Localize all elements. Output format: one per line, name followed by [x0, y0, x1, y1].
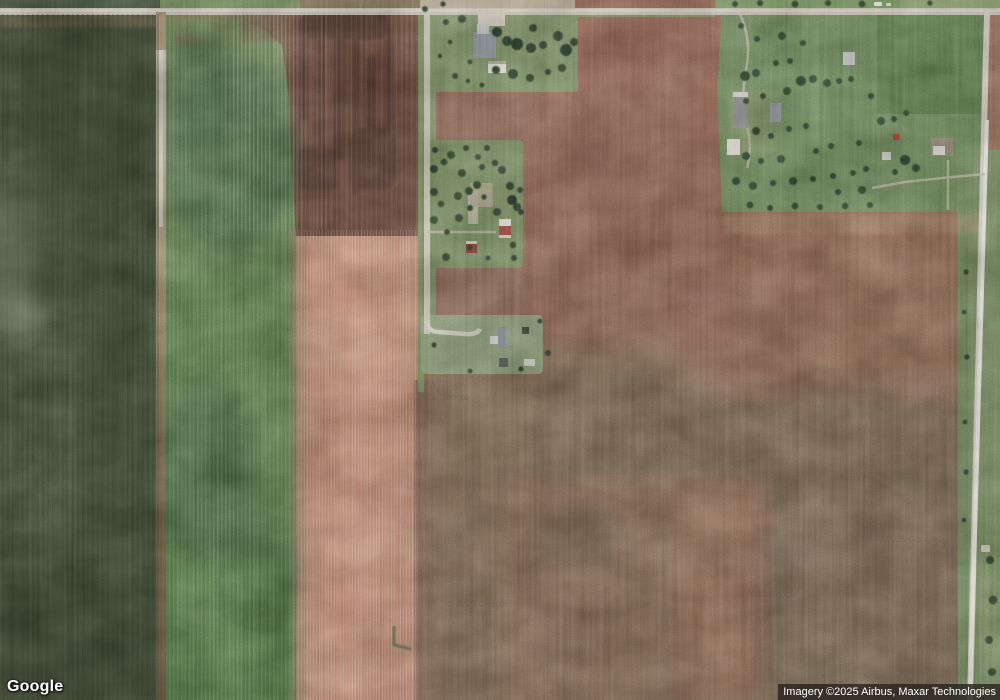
- svg-text:© 2025 Google: © 2025 Google: [447, 599, 508, 609]
- svg-text:© 2025 Google: © 2025 Google: [78, 457, 139, 467]
- svg-text:© 2025 Google: © 2025 Google: [408, 392, 469, 402]
- svg-text:© 2025 Google: © 2025 Google: [877, 534, 938, 544]
- svg-text:© 2025 Google: © 2025 Google: [737, 589, 798, 599]
